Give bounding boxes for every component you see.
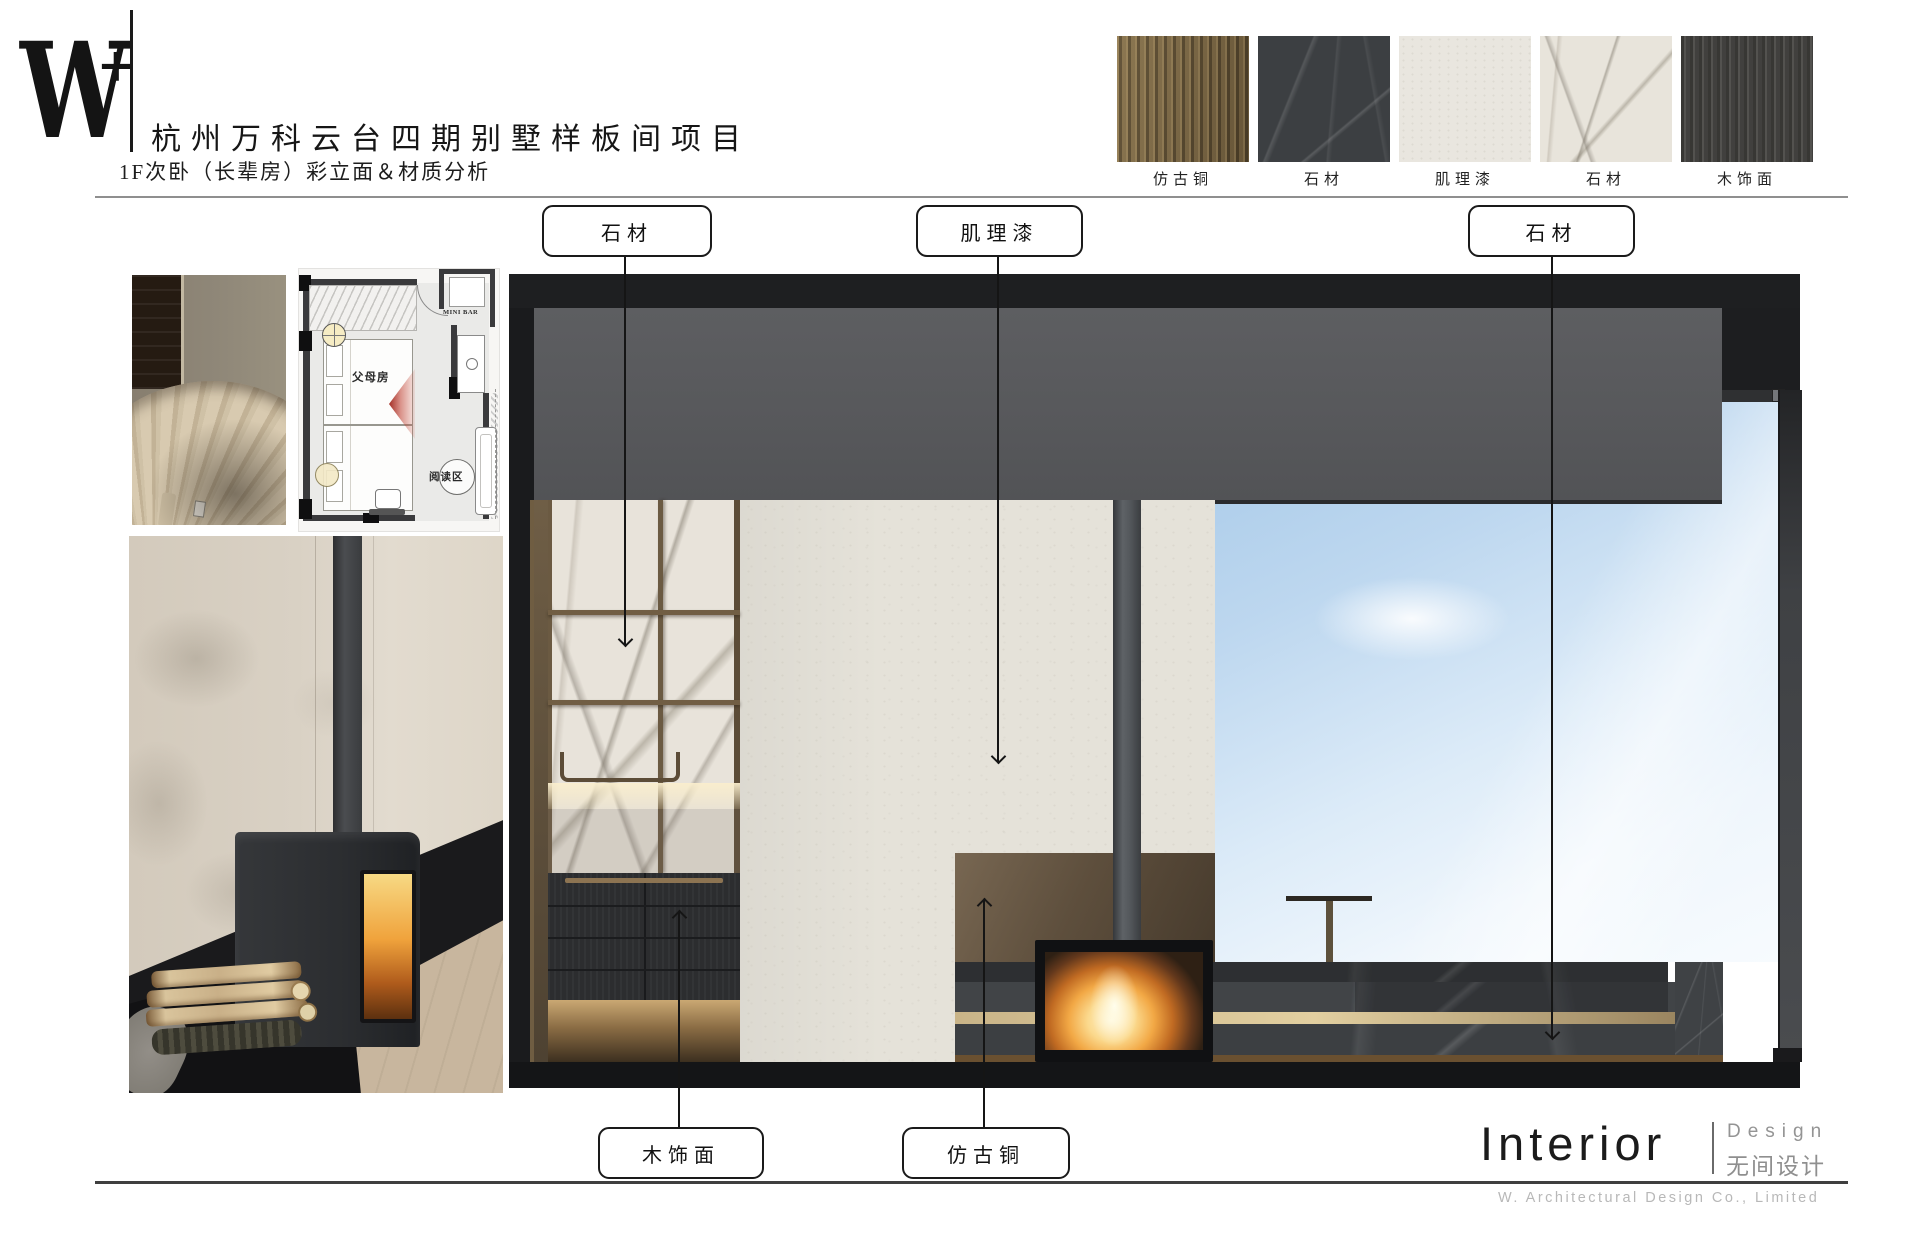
arrow-up-icon: [983, 900, 985, 1127]
swatch-label-texture-paint: 肌理漆: [1399, 168, 1531, 189]
footer-design-cn: 无间设计: [1726, 1147, 1826, 1181]
shelf-bar: [548, 610, 740, 615]
cove-light: [548, 783, 740, 809]
drawer-handle: [565, 878, 723, 883]
window-head-strip: [1722, 390, 1778, 402]
plan-reading-label: 阅读区: [429, 469, 464, 484]
plan-bench: [369, 509, 405, 515]
callout-wood-veneer: 木饰面: [598, 1127, 764, 1179]
plan-room-label: 父母房: [352, 369, 390, 385]
footer-company: W. Architectural Design Co., Limited: [1498, 1190, 1819, 1206]
marble-cabinet-panel: [548, 500, 740, 873]
corner-shadow: [150, 419, 286, 525]
footer-design-en: Design: [1727, 1121, 1828, 1143]
plan-minibar-wall: [439, 269, 444, 309]
plan-desk: [457, 335, 485, 393]
callout-texture-paint: 肌理漆: [916, 205, 1083, 257]
plan-chaise: [475, 427, 497, 515]
cabinet-bronze-trim: [534, 500, 548, 1062]
arrow-down-icon: [624, 253, 626, 645]
window-frame-foot: [1773, 1048, 1802, 1062]
plan-pillow: [326, 384, 343, 416]
reference-photo-fan-lamp: [132, 275, 286, 525]
bench-end-block: [1675, 962, 1723, 1055]
callout-stone-right: 石材: [1468, 205, 1635, 257]
corner-black-block: [1722, 308, 1800, 390]
page-title: 杭州万科云台四期别墅样板间项目: [151, 114, 751, 158]
swatch-label-dark-stone: 石材: [1258, 168, 1390, 189]
plan-bed-line: [350, 340, 351, 424]
plan-lamp: [315, 463, 339, 487]
header-rule: [95, 196, 1848, 198]
drawer-divider: [548, 969, 740, 971]
shelf-bar: [548, 700, 740, 705]
plan-stool: [375, 489, 401, 509]
drawer-divider: [548, 937, 740, 939]
firewood-logs: [143, 958, 321, 1093]
swatch-label-white-stone: 石材: [1540, 168, 1672, 189]
plan-minibar-wall: [490, 269, 495, 327]
reference-photo-fireplace: [129, 536, 503, 1093]
log-end-grain: [290, 980, 311, 1001]
swatch-label-wood-veneer: 木饰面: [1681, 168, 1813, 189]
cabinet-lit-base: [548, 1000, 740, 1062]
plan-chaise-cushion: [480, 434, 492, 508]
fireplace-flue: [1113, 500, 1141, 940]
plan-pillow: [326, 431, 343, 463]
marble-backsplash-shade: [548, 809, 740, 873]
stove-fire-window: [360, 870, 416, 1023]
plan-desk-knob: [466, 358, 478, 370]
page-subtitle: 1F次卧（长辈房）彩立面＆材质分析: [119, 156, 490, 186]
swatch-label-antique-bronze: 仿古铜: [1117, 168, 1249, 189]
window-frame-right: [1778, 390, 1802, 1062]
log-end-grain: [298, 1002, 318, 1022]
plan-wall-bottom: [303, 515, 415, 521]
slide-canvas: W + 杭州万科云台四期别墅样板间项目 1F次卧（长辈房）彩立面＆材质分析 仿古…: [0, 0, 1920, 1248]
plan-minibar-counter: [449, 277, 485, 307]
swatch-white-stone: [1540, 36, 1672, 162]
ceiling-beam-band: [534, 308, 1722, 504]
plan-lamp-cross: [323, 335, 345, 336]
elevation-floor-bar: [509, 1062, 1800, 1088]
arrow-down-icon: [1551, 253, 1553, 1038]
bench-recess-shadow: [1355, 982, 1668, 1012]
header-divider: [130, 10, 133, 152]
ceiling-black-bar: [509, 274, 1800, 308]
plan-minibar-wall: [439, 269, 495, 274]
plan-column: [299, 331, 312, 351]
swatch-antique-bronze: [1117, 36, 1249, 162]
footer-brand-divider: [1712, 1122, 1714, 1174]
plan-wardrobe: [309, 285, 417, 331]
floor-plan: MINI BAR 父母房 阅读区: [298, 268, 500, 532]
swatch-wood-veneer: [1681, 36, 1813, 162]
callout-stone-left: 石材: [542, 205, 712, 257]
plan-bed-line: [350, 426, 351, 510]
footer-rule: [95, 1181, 1848, 1184]
drawer-divider: [548, 905, 740, 907]
fireplace-stove: [1035, 940, 1213, 1062]
plan-lamp: [322, 323, 346, 347]
footer-brand: Interior: [1480, 1116, 1666, 1171]
beam-edge-highlight: [181, 275, 184, 389]
callout-antique-bronze: 仿古铜: [902, 1127, 1070, 1179]
plan-minibar-label: MINI BAR: [443, 309, 478, 316]
plan-pillow: [326, 345, 343, 377]
stove-fire: [1045, 952, 1203, 1050]
dark-wood-beam: [132, 275, 181, 389]
hanging-rail: [560, 752, 680, 782]
wood-veneer-drawers: [548, 873, 740, 1000]
swatch-texture-paint: [1399, 36, 1531, 162]
arrow-up-icon: [678, 912, 680, 1127]
swatch-dark-stone: [1258, 36, 1390, 162]
arrow-down-icon: [997, 253, 999, 762]
stove-flue-pipe: [333, 536, 362, 836]
plan-curtain-line: [495, 389, 496, 519]
elevation-drawing: [509, 274, 1800, 1088]
plan-column: [299, 499, 312, 519]
